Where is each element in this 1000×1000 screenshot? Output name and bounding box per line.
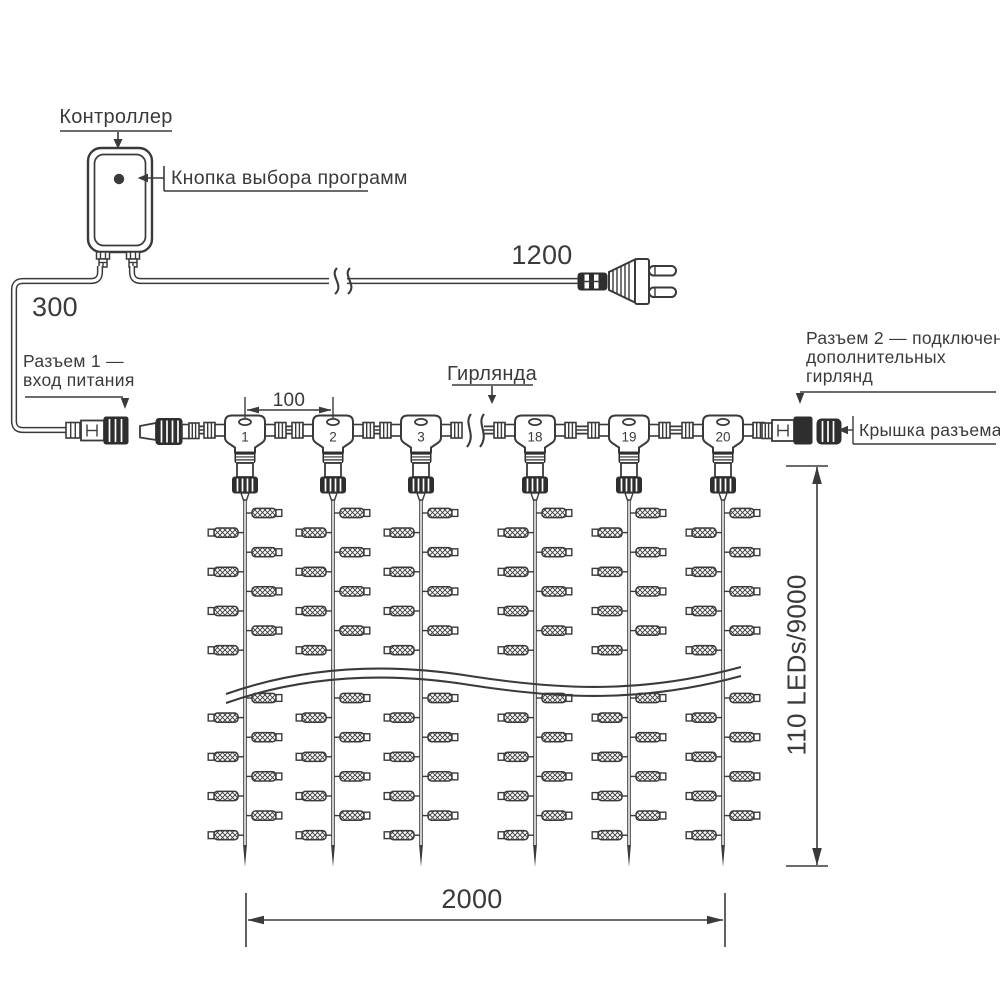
led-icon bbox=[334, 508, 370, 517]
led-icon bbox=[536, 548, 572, 557]
led-icon bbox=[724, 693, 760, 702]
led-icon bbox=[296, 606, 332, 615]
led-icon bbox=[296, 713, 332, 722]
led-icon bbox=[384, 528, 420, 537]
led-icon bbox=[536, 733, 572, 742]
drop-connector bbox=[321, 453, 346, 501]
t-connector-number: 18 bbox=[527, 430, 542, 445]
led-icon bbox=[686, 567, 722, 576]
led-icon bbox=[296, 752, 332, 761]
program-select-button-dot bbox=[114, 174, 124, 184]
t-connector-number: 2 bbox=[329, 430, 337, 445]
led-icon bbox=[246, 587, 282, 596]
led-icon bbox=[630, 811, 666, 820]
led-icon bbox=[536, 772, 572, 781]
led-icon bbox=[724, 626, 760, 635]
t-connector-number: 3 bbox=[417, 430, 425, 445]
led-icon bbox=[296, 646, 332, 655]
led-icon bbox=[686, 752, 722, 761]
garland-break-icon bbox=[467, 414, 484, 447]
led-icon bbox=[536, 587, 572, 596]
led-icon bbox=[334, 693, 370, 702]
hanging-hole-icon bbox=[239, 419, 251, 425]
led-icon bbox=[498, 646, 534, 655]
led-icon bbox=[686, 831, 722, 840]
garland-callout bbox=[452, 385, 533, 404]
led-icon bbox=[498, 752, 534, 761]
t-connector-number: 20 bbox=[715, 430, 730, 445]
led-icon bbox=[686, 606, 722, 615]
drop-string bbox=[243, 500, 247, 867]
led-icon bbox=[246, 626, 282, 635]
led-icon bbox=[724, 587, 760, 596]
led-icon bbox=[592, 567, 628, 576]
drop-connector bbox=[409, 453, 434, 501]
led-icon bbox=[592, 528, 628, 537]
led-icon bbox=[422, 772, 458, 781]
dim-100-label: 100 bbox=[264, 390, 314, 412]
led-icon bbox=[498, 528, 534, 537]
led-icon bbox=[296, 567, 332, 576]
garland-drop-2: 2 bbox=[292, 416, 374, 868]
t-connector-19: 19 bbox=[588, 416, 670, 453]
garland-drop-3: 3 bbox=[380, 416, 462, 868]
led-icon bbox=[334, 626, 370, 635]
led-icon bbox=[724, 772, 760, 781]
led-icon bbox=[592, 713, 628, 722]
connector-cap-icon bbox=[817, 419, 841, 444]
led-icon bbox=[536, 811, 572, 820]
led-icon bbox=[334, 733, 370, 742]
garland-drop-19: 19 bbox=[588, 416, 670, 868]
connector2-label-line2: дополнительных bbox=[806, 347, 946, 368]
led-icon bbox=[630, 772, 666, 781]
led-icon bbox=[422, 587, 458, 596]
controller-box bbox=[88, 148, 152, 267]
power-cable-left bbox=[14, 266, 100, 430]
led-icon bbox=[246, 548, 282, 557]
led-icon bbox=[384, 567, 420, 576]
led-icon bbox=[630, 733, 666, 742]
led-icon bbox=[686, 713, 722, 722]
connector2-label-line3: гирлянд bbox=[806, 366, 873, 387]
garland-drop-18: 18 bbox=[494, 416, 576, 868]
t-connector-2: 2 bbox=[292, 416, 374, 453]
t-connector-3: 3 bbox=[380, 416, 462, 453]
cable-break-icon bbox=[335, 268, 352, 294]
led-icon bbox=[384, 752, 420, 761]
led-icon bbox=[208, 528, 244, 537]
led-icon bbox=[334, 811, 370, 820]
dim-height-label: 110 LEDs/9000 bbox=[782, 574, 813, 755]
led-icon bbox=[724, 508, 760, 517]
led-icon bbox=[498, 713, 534, 722]
led-icon bbox=[724, 733, 760, 742]
led-icon bbox=[208, 713, 244, 722]
led-icon bbox=[296, 528, 332, 537]
connector1-callout bbox=[25, 397, 129, 409]
plug-prongs bbox=[649, 266, 676, 297]
drop-string bbox=[721, 500, 725, 867]
led-icon bbox=[208, 831, 244, 840]
led-icon bbox=[246, 772, 282, 781]
connector-cap-label: Крышка разъема bbox=[859, 420, 1000, 441]
connector1-male bbox=[66, 417, 128, 444]
curtain-drops: 123181920 bbox=[204, 416, 764, 868]
led-icon bbox=[592, 606, 628, 615]
led-icon bbox=[422, 693, 458, 702]
t-connector-1: 1 bbox=[204, 416, 286, 453]
led-icon bbox=[296, 831, 332, 840]
hanging-hole-icon bbox=[327, 419, 339, 425]
led-icon bbox=[686, 791, 722, 800]
connector2-assembly bbox=[762, 417, 841, 444]
drop-connector bbox=[233, 453, 258, 501]
t-connector-18: 18 bbox=[494, 416, 576, 453]
connector1-label-line2: вход питания bbox=[23, 370, 135, 391]
led-icon bbox=[334, 587, 370, 596]
led-icon bbox=[208, 752, 244, 761]
led-icon bbox=[296, 791, 332, 800]
led-icon bbox=[498, 791, 534, 800]
led-icon bbox=[422, 508, 458, 517]
led-icon bbox=[592, 791, 628, 800]
led-icon bbox=[208, 646, 244, 655]
drop-connector bbox=[711, 453, 736, 501]
led-icon bbox=[630, 508, 666, 517]
led-icon bbox=[384, 646, 420, 655]
led-icon bbox=[630, 587, 666, 596]
led-icon bbox=[422, 548, 458, 557]
led-icon bbox=[422, 733, 458, 742]
drop-string bbox=[627, 500, 631, 867]
led-icon bbox=[422, 811, 458, 820]
led-icon bbox=[384, 606, 420, 615]
controller-callout bbox=[60, 131, 172, 149]
drop-string bbox=[419, 500, 423, 867]
led-icon bbox=[592, 752, 628, 761]
led-icon bbox=[498, 606, 534, 615]
connector2-callout bbox=[796, 392, 996, 404]
led-icon bbox=[208, 606, 244, 615]
led-icon bbox=[592, 646, 628, 655]
led-icon bbox=[384, 713, 420, 722]
led-icon bbox=[686, 528, 722, 537]
led-icon bbox=[384, 831, 420, 840]
led-icon bbox=[384, 791, 420, 800]
led-icon bbox=[246, 733, 282, 742]
led-icon bbox=[592, 831, 628, 840]
hanging-hole-icon bbox=[623, 419, 635, 425]
connector2-label-line1: Разъем 2 — подключение bbox=[806, 328, 1000, 349]
wiring-diagram: 123181920 bbox=[0, 0, 1000, 1000]
led-icon bbox=[334, 548, 370, 557]
led-icon bbox=[334, 772, 370, 781]
led-icon bbox=[686, 646, 722, 655]
garland-drop-20: 20 bbox=[682, 416, 764, 868]
led-icon bbox=[724, 548, 760, 557]
drop-connector bbox=[617, 453, 642, 501]
dim-300-label: 300 bbox=[25, 292, 85, 323]
dim-1200-label: 1200 bbox=[507, 240, 577, 271]
dim-2000-label: 2000 bbox=[437, 884, 507, 915]
controller-output-stub-left bbox=[97, 252, 110, 267]
controller-output-stub-right bbox=[127, 252, 140, 267]
led-icon bbox=[246, 811, 282, 820]
led-icon bbox=[498, 831, 534, 840]
led-icon bbox=[536, 508, 572, 517]
led-icon bbox=[208, 791, 244, 800]
led-icon bbox=[498, 567, 534, 576]
led-icon bbox=[724, 811, 760, 820]
led-icon bbox=[630, 548, 666, 557]
diagram-canvas: 123181920 bbox=[0, 0, 1000, 1000]
garland-drop-1: 1 bbox=[204, 416, 286, 868]
controller-label: Контроллер bbox=[56, 106, 176, 129]
hanging-hole-icon bbox=[529, 419, 541, 425]
led-icon bbox=[630, 626, 666, 635]
garland-label: Гирлянда bbox=[447, 363, 537, 386]
led-icon bbox=[246, 508, 282, 517]
led-icon bbox=[536, 626, 572, 635]
led-icon bbox=[208, 567, 244, 576]
connector1-label-line1: Разъем 1 — bbox=[23, 351, 124, 372]
program-button-label: Кнопка выбора программ bbox=[171, 167, 408, 190]
t-connector-number: 1 bbox=[241, 430, 249, 445]
drop-connector bbox=[523, 453, 548, 501]
connector1-female bbox=[140, 419, 199, 445]
power-plug-icon bbox=[578, 259, 676, 304]
hanging-hole-icon bbox=[415, 419, 427, 425]
drop-string bbox=[331, 500, 335, 867]
t-connector-20: 20 bbox=[682, 416, 764, 453]
t-connector-number: 19 bbox=[621, 430, 636, 445]
led-icon bbox=[422, 626, 458, 635]
hanging-hole-icon bbox=[717, 419, 729, 425]
